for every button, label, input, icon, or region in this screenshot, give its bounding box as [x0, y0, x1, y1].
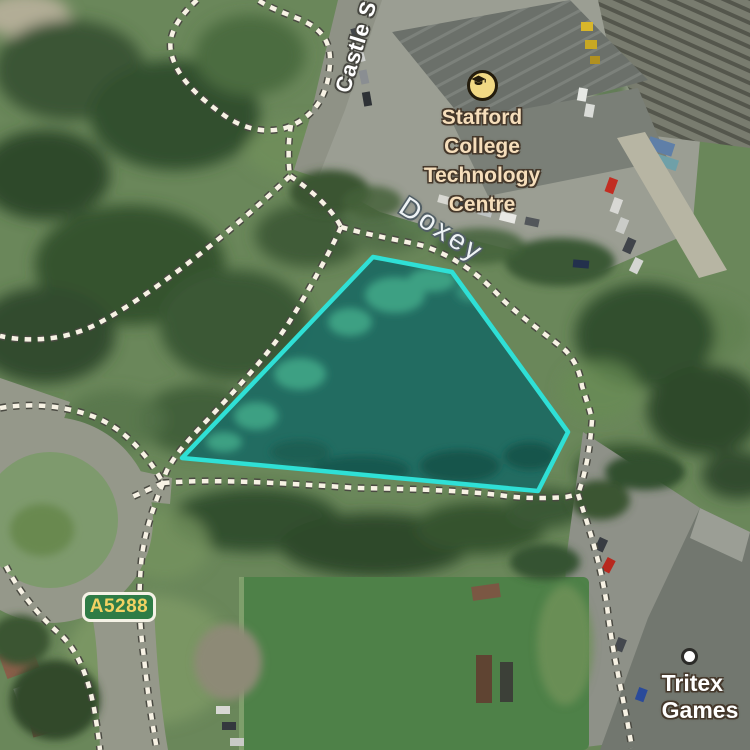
- road-ref-badge-a5288: A5288: [82, 592, 156, 622]
- college-label-line2: Technology Centre: [424, 161, 540, 219]
- poi-college-label[interactable]: Stafford College Technology Centre: [424, 103, 540, 219]
- poi-dot-icon[interactable]: [681, 648, 698, 665]
- graduation-cap-icon[interactable]: [467, 70, 498, 101]
- satellite-map-canvas[interactable]: Castle S Doxey Stafford College Technolo…: [0, 0, 750, 750]
- college-label-line1: Stafford College: [424, 103, 540, 161]
- graduation-cap-glyph: [470, 73, 487, 90]
- dirt-patch: [194, 624, 262, 700]
- poi-business-label[interactable]: Tritex Games: [662, 670, 739, 724]
- shed: [476, 655, 492, 703]
- shed: [500, 662, 513, 702]
- map-imagery: [0, 0, 750, 750]
